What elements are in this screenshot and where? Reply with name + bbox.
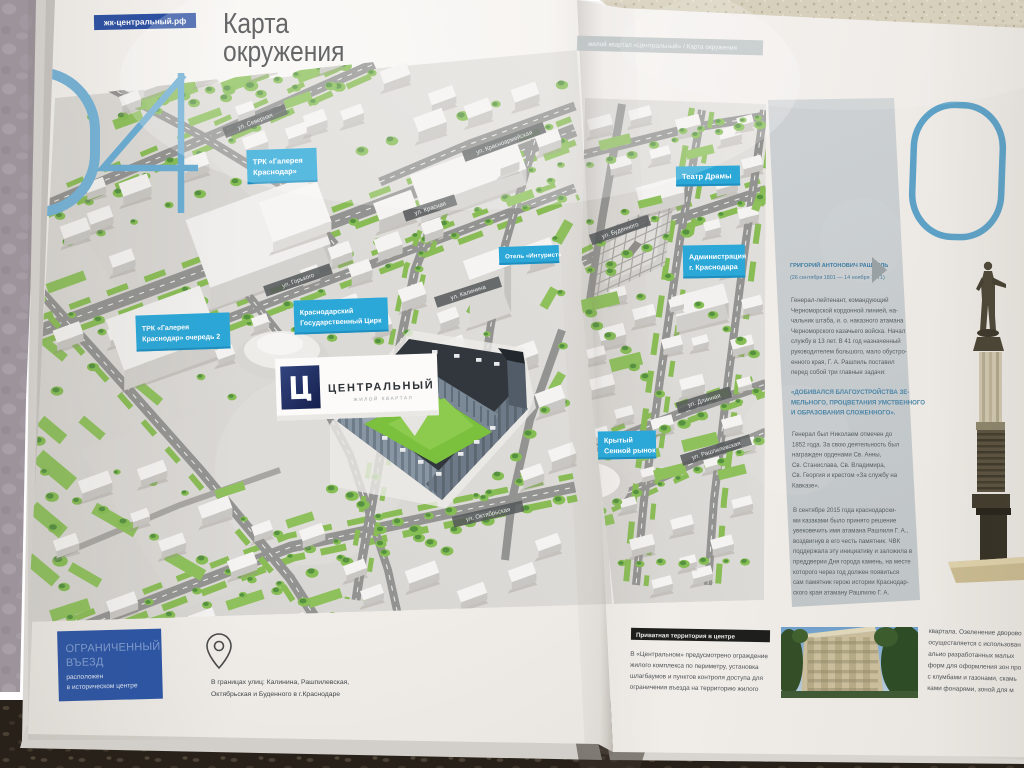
svg-text:перед собой три главные задачи: перед собой три главные задачи: — [791, 369, 886, 376]
svg-text:чальник штаба, и. о. наказного: чальник штаба, и. о. наказного атамана — [791, 318, 904, 325]
svg-text:преддверии Дня города камень,: преддверии Дня города камень, на месте — [793, 559, 911, 566]
svg-text:ского края атаману Рашпилю Г.: ского края атаману Рашпилю Г. А. — [793, 589, 889, 596]
svg-text:Св. Георгия и крестом «За служ: Св. Георгия и крестом «За службу на — [792, 472, 898, 479]
svg-text:В сентябре 2015 года краснодар: В сентябре 2015 года краснодарски- — [793, 507, 896, 514]
svg-text:Св. Станислава, Св. Владимира,: Св. Станислава, Св. Владимира, — [792, 462, 886, 469]
svg-text:И ОБРАЗОВАНИЯ СЛОЖЕННОГО».: И ОБРАЗОВАНИЯ СЛОЖЕННОГО». — [791, 410, 896, 417]
svg-text:1852 года. За свою деятельност: 1852 года. За свою деятельность был — [792, 441, 900, 448]
svg-text:увековечить имя атамана Рашпил: увековечить имя атамана Рашпиля Г. А., — [793, 528, 908, 535]
svg-text:МЕЛЬНОГО, ПРОЦВЕТАНИЯ УМСТВЕНН: МЕЛЬНОГО, ПРОЦВЕТАНИЯ УМСТВЕННОГО — [791, 399, 925, 406]
svg-text:Черноморской кордонной линией,: Черноморской кордонной линией, на- — [791, 307, 898, 314]
svg-text:Черноморского казачьего войска: Черноморского казачьего войска. Начал — [791, 328, 906, 335]
svg-text:Генерал-лейтенант, командующий: Генерал-лейтенант, командующий — [791, 297, 889, 304]
svg-text:Генерал был Николаем отмечен д: Генерал был Николаем отмечен до — [792, 431, 893, 438]
svg-text:Администрация: Администрация — [689, 251, 746, 261]
svg-text:воздвигнув в его честь памятни: воздвигнув в его честь памятник. ЧВК — [793, 538, 901, 545]
svg-text:руководителем большого, мало о: руководителем большого, мало обустро- — [791, 349, 907, 356]
svg-text:Сенной рынок: Сенной рынок — [604, 445, 656, 455]
svg-text:г. Краснодара: г. Краснодара — [689, 262, 739, 272]
svg-text:сам памятник герою истории Кра: сам памятник герою истории Краснодар- — [793, 579, 909, 586]
svg-text:поддержала эту инициативу и за: поддержала эту инициативу и заложила в — [793, 548, 912, 555]
svg-text:енного края, Г. А. Рашпиль по: енного края, Г. А. Рашпиль поставил — [791, 359, 895, 366]
svg-text:ми казаками было принято решен: ми казаками было принято решение — [793, 517, 897, 524]
svg-text:(26 сентября 1801 — 14 ноября: (26 сентября 1801 — 14 ноября 1871) — [790, 275, 885, 281]
svg-text:службу в 13 лет. В 41 год назн: службу в 13 лет. В 41 год назначенный — [791, 338, 901, 345]
svg-text:которого через год должен появ: которого через год должен появиться — [793, 569, 899, 576]
svg-text:«ДОБИВАЛСЯ БЛАГОУСТРОЙСТВА ЗЕ-: «ДОБИВАЛСЯ БЛАГОУСТРОЙСТВА ЗЕ- — [791, 388, 909, 396]
svg-text:награжден орденами Св. Анны,: награжден орденами Св. Анны, — [792, 452, 882, 459]
svg-text:Крытый: Крытый — [604, 435, 633, 445]
svg-text:Кавказе».: Кавказе». — [792, 483, 820, 490]
